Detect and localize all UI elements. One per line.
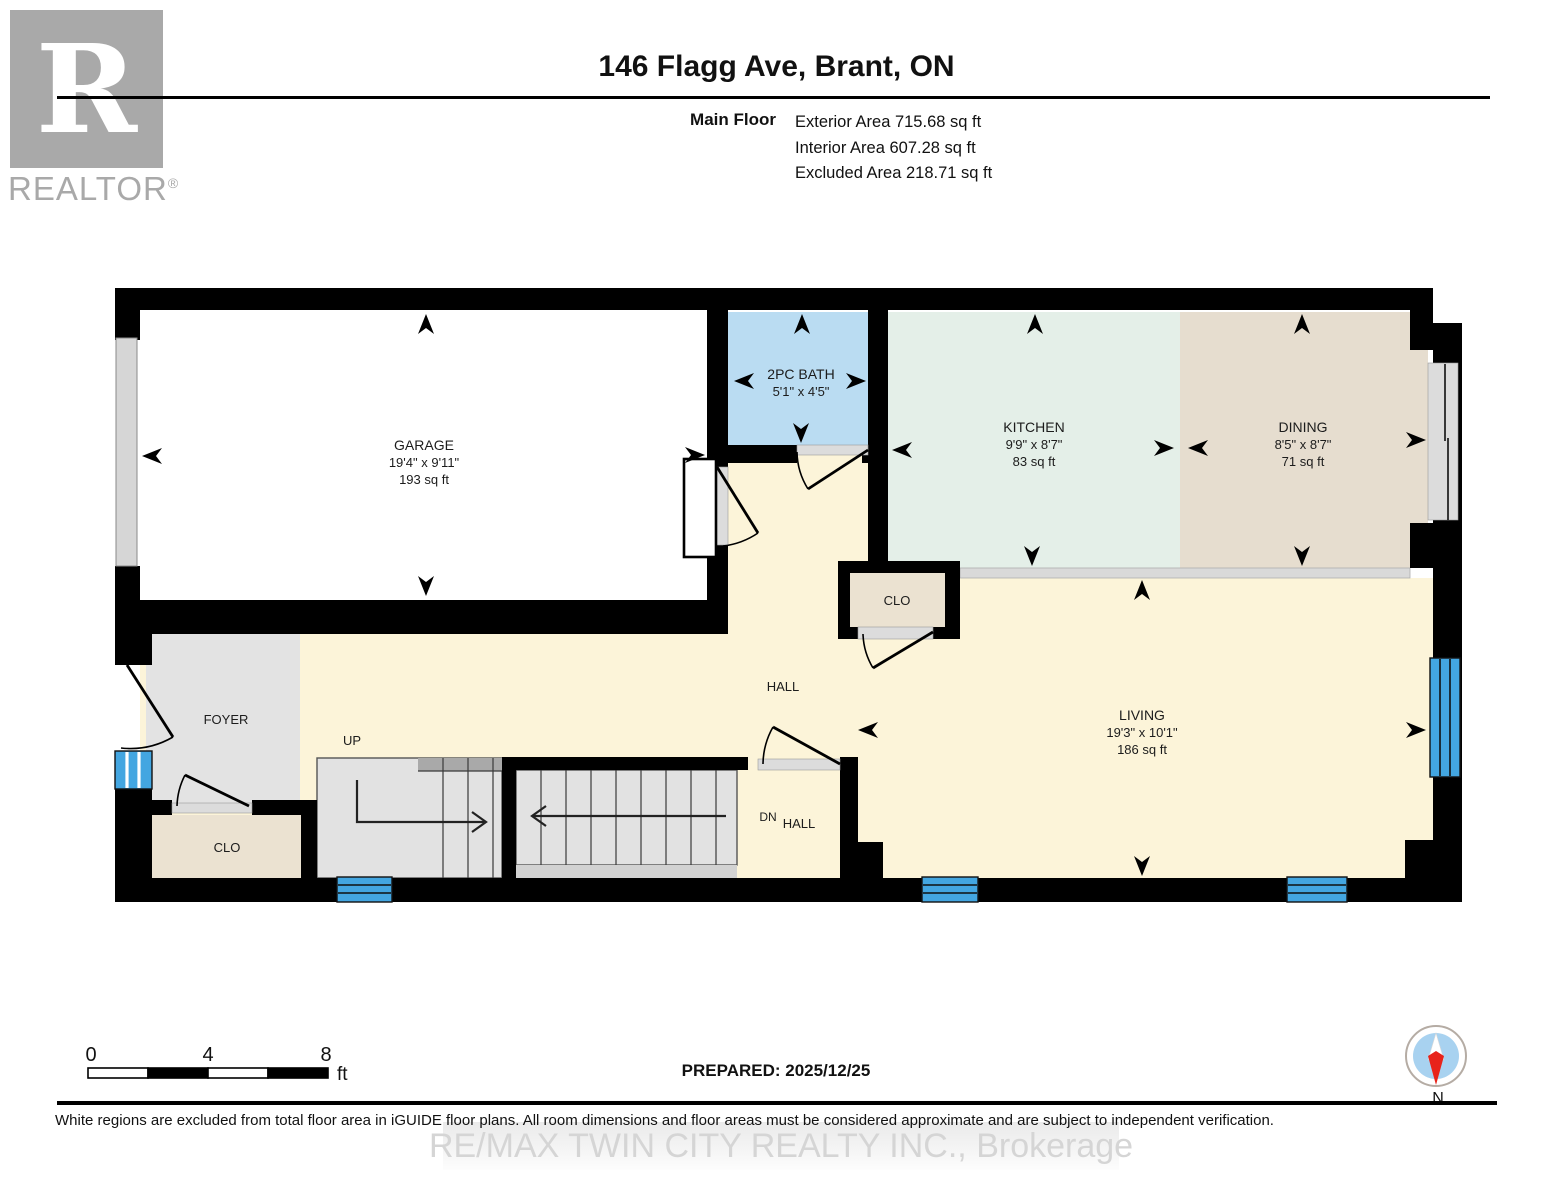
living-window-right	[1287, 877, 1347, 902]
kitchen-label: KITCHEN	[1003, 419, 1064, 435]
floorplan-page: R REALTOR® 146 Flagg Ave, Brant, ON Main…	[0, 0, 1553, 1200]
scale-bar: 0 4 8 ft	[85, 1044, 348, 1085]
kitchen-closet-label: CLO	[884, 593, 911, 608]
prepared-date: PREPARED: 2025/12/25	[682, 1061, 871, 1080]
brokerage-watermark: RE/MAX TWIN CITY REALTY INC., Brokerage	[443, 1122, 1119, 1170]
dining-dims: 8'5" x 8'7"	[1275, 437, 1332, 452]
bath-label: 2PC BATH	[767, 366, 834, 382]
patio-sliding-door	[1428, 363, 1458, 520]
half-wall-counter	[960, 568, 1410, 578]
stairs-up-group	[317, 758, 502, 878]
bath-door-sill	[797, 445, 868, 455]
hall-label: HALL	[767, 679, 800, 694]
kitchen-area: 83 sq ft	[1013, 454, 1056, 469]
scale-mid: 4	[202, 1044, 213, 1066]
stairs-down-area	[516, 770, 737, 865]
foyer-window	[115, 751, 152, 789]
living-label: LIVING	[1119, 707, 1165, 723]
stairs-up-area	[317, 758, 502, 878]
header-divider	[57, 96, 1490, 99]
stairs-down-label: DN	[759, 810, 776, 824]
scale-start: 0	[85, 1044, 96, 1066]
living-side-window	[1430, 658, 1460, 777]
lower-hall-label: HALL	[783, 816, 816, 831]
stairs-down-base	[516, 865, 737, 878]
scale-end: 8	[320, 1044, 331, 1066]
stairs-down-group	[516, 770, 737, 878]
footer-divider	[57, 1101, 1497, 1105]
hall-door-sill	[758, 759, 840, 770]
scale-unit: ft	[337, 1064, 348, 1085]
foyer-closet-label: CLO	[214, 840, 241, 855]
foyer-closet-sill	[172, 803, 252, 813]
stairs-up-landing	[418, 758, 502, 771]
stairs-window	[337, 877, 392, 902]
living-dims: 19'3" x 10'1"	[1106, 725, 1178, 740]
dining-area: 71 sq ft	[1282, 454, 1325, 469]
brokerage-watermark-text: RE/MAX TWIN CITY REALTY INC., Brokerage	[429, 1127, 1133, 1166]
garage-dims: 19'4" x 9'11"	[389, 455, 460, 470]
bath-dims: 5'1" x 4'5"	[773, 384, 830, 399]
floorplan-drawing: GARAGE 19'4" x 9'11" 193 sq ft 2PC BATH …	[0, 0, 1553, 1200]
compass: N	[1406, 1026, 1466, 1107]
disclaimer-text: White regions are excluded from total fl…	[55, 1112, 1355, 1129]
living-window-left	[922, 877, 978, 902]
garage-door-panel	[684, 459, 716, 557]
foyer-label: FOYER	[204, 712, 249, 727]
garage-label: GARAGE	[394, 437, 454, 453]
kitchen-dims: 9'9" x 8'7"	[1006, 437, 1063, 452]
stairs-up-label: UP	[343, 733, 361, 748]
living-upper	[960, 578, 1433, 634]
dining-label: DINING	[1279, 419, 1328, 435]
garage-overhead-door	[116, 338, 137, 566]
living-area: 186 sq ft	[1117, 742, 1167, 757]
garage-area: 193 sq ft	[399, 472, 449, 487]
